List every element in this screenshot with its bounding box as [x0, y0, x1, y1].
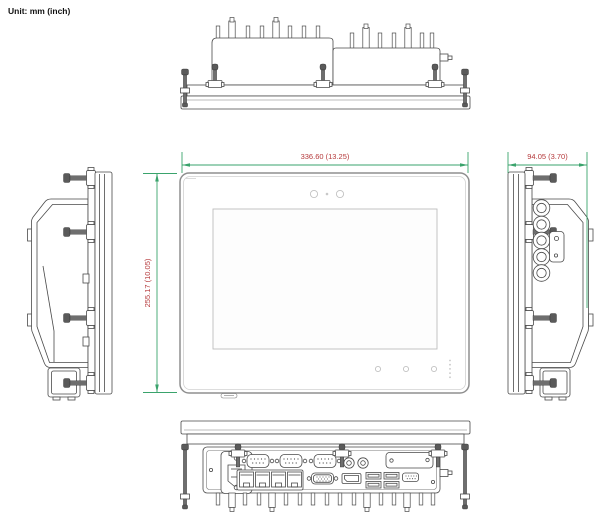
side-tab — [589, 314, 594, 326]
expansion-plate — [386, 453, 433, 469]
displayport — [342, 474, 361, 484]
screen-area — [213, 209, 437, 349]
center-dot — [326, 193, 329, 196]
right-side-view — [508, 168, 593, 401]
m12-connectors — [533, 200, 550, 282]
antenna-stub-top — [440, 54, 448, 61]
front-panel-edge-left — [95, 172, 112, 394]
height-dimension: 255.17 (10.05) — [143, 174, 177, 393]
side-tab — [589, 229, 594, 241]
rear-plate-bar-bottom — [187, 434, 464, 444]
front-panel-bar-bottom — [181, 421, 470, 434]
height-dimension-label: 255.17 (10.05) — [143, 258, 152, 307]
top-view — [181, 18, 471, 110]
antenna-stub-tip — [448, 56, 452, 60]
chassis-profile-left — [32, 199, 89, 368]
dio-port — [403, 473, 419, 482]
vga-port — [307, 473, 338, 484]
antenna-stub-bottom — [440, 470, 448, 477]
lan-ports — [237, 470, 303, 490]
chassis-top-right-block — [333, 48, 440, 85]
front-panel-edge-right — [508, 172, 525, 394]
bottom-view — [181, 421, 471, 512]
width-dimension: 336.60 (13.25) — [182, 152, 468, 173]
front-view — [180, 173, 469, 398]
front-panel-bar-top — [181, 96, 470, 109]
mount-plate — [88, 180, 95, 387]
chassis-top-left-block — [212, 38, 333, 85]
depth-dimension-label: 94.05 (3.70) — [527, 152, 568, 161]
drawing-svg: 336.60 (13.25) 94.05 (3.70) 255.17 (10.0… — [0, 0, 600, 526]
heatsink-fins-bottom — [216, 493, 435, 512]
dimensional-drawing-page: Unit: mm (inch) — [0, 0, 600, 526]
width-dimension-label: 336.60 (13.25) — [301, 152, 350, 161]
left-side-view — [28, 168, 113, 401]
mount-plate — [525, 180, 532, 387]
